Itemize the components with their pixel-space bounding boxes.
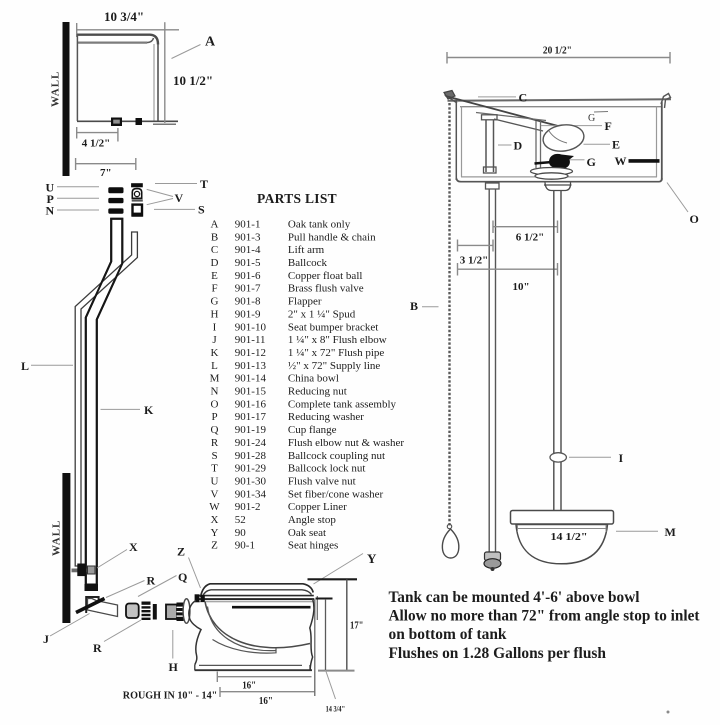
svg-text:C: C — [211, 244, 218, 256]
svg-text:A: A — [211, 219, 219, 231]
svg-text:Cup flange: Cup flange — [288, 424, 337, 436]
svg-text:L: L — [211, 360, 218, 372]
svg-text:901-15: 901-15 — [235, 386, 267, 398]
svg-text:I: I — [213, 321, 217, 333]
svg-text:H: H — [211, 308, 219, 320]
svg-text:901-19: 901-19 — [235, 424, 267, 436]
svg-text:Copper float ball: Copper float ball — [288, 270, 363, 282]
svg-text:Y: Y — [211, 527, 219, 539]
svg-text:C: C — [519, 91, 528, 105]
svg-text:D: D — [514, 139, 523, 153]
svg-text:Ballcock lock nut: Ballcock lock nut — [288, 463, 366, 475]
svg-text:J: J — [212, 334, 217, 346]
svg-text:901-1: 901-1 — [235, 219, 261, 231]
svg-text:3 1/2": 3 1/2" — [460, 255, 488, 267]
svg-text:Z: Z — [177, 545, 185, 559]
svg-text:10": 10" — [512, 281, 529, 293]
svg-text:52: 52 — [235, 514, 246, 526]
svg-text:2" x 1 ¼" Spud: 2" x 1 ¼" Spud — [288, 308, 356, 320]
svg-text:T: T — [200, 177, 208, 191]
svg-text:Ballcock coupling nut: Ballcock coupling nut — [288, 450, 385, 462]
svg-text:K: K — [144, 403, 154, 417]
svg-text:90-1: 90-1 — [235, 540, 255, 552]
svg-text:China bowl: China bowl — [288, 373, 339, 385]
svg-text:Brass flush valve: Brass flush valve — [288, 283, 364, 295]
svg-text:R: R — [147, 574, 156, 588]
svg-text:WALL: WALL — [50, 71, 62, 107]
svg-text:N: N — [46, 204, 55, 218]
svg-text:Lift arm: Lift arm — [288, 244, 325, 256]
svg-text:Q: Q — [211, 424, 219, 436]
svg-text:R: R — [211, 437, 219, 449]
svg-text:E: E — [612, 138, 620, 152]
svg-text:901-5: 901-5 — [235, 257, 261, 269]
svg-text:R: R — [93, 641, 102, 655]
svg-text:D: D — [211, 257, 219, 269]
svg-text:G: G — [211, 296, 219, 308]
svg-text:ROUGH IN 10" - 14": ROUGH IN 10" - 14" — [123, 690, 218, 702]
svg-text:Seat bumper bracket: Seat bumper bracket — [288, 321, 378, 333]
svg-text:X: X — [211, 514, 219, 526]
svg-text:901-16: 901-16 — [235, 398, 267, 410]
svg-text:I: I — [619, 451, 624, 465]
svg-text:G: G — [588, 113, 595, 124]
svg-text:Flush valve nut: Flush valve nut — [288, 476, 356, 488]
svg-text:6 1/2": 6 1/2" — [516, 232, 544, 244]
svg-text:901-7: 901-7 — [235, 283, 261, 295]
svg-text:V: V — [211, 488, 219, 500]
svg-text:Pull handle & chain: Pull handle & chain — [288, 231, 376, 243]
svg-text:Set fiber/cone washer: Set fiber/cone washer — [288, 488, 384, 500]
svg-text:10 3/4": 10 3/4" — [104, 9, 144, 24]
svg-text:X: X — [129, 540, 138, 554]
svg-text:Copper Liner: Copper Liner — [288, 501, 347, 513]
svg-text:901-24: 901-24 — [235, 437, 267, 449]
svg-text:Tank can be mounted 4'-6' abov: Tank can be mounted 4'-6' above bowl — [389, 589, 641, 606]
svg-text:901-8: 901-8 — [235, 296, 261, 308]
svg-text:F: F — [211, 283, 217, 295]
svg-text:1 ¼" x 8" Flush elbow: 1 ¼" x 8" Flush elbow — [288, 334, 387, 346]
svg-text:N: N — [211, 386, 219, 398]
svg-text:Oak seat: Oak seat — [288, 527, 326, 539]
svg-text:Complete tank assembly: Complete tank assembly — [288, 398, 397, 410]
svg-text:17": 17" — [350, 621, 364, 632]
svg-text:Z: Z — [211, 540, 218, 552]
svg-text:Y: Y — [367, 551, 377, 566]
svg-text:on bottom of tank: on bottom of tank — [389, 626, 507, 643]
svg-text:Allow no more than 72" from an: Allow no more than 72" from angle stop t… — [389, 608, 701, 625]
svg-text:901-13: 901-13 — [235, 360, 267, 372]
svg-text:WALL: WALL — [51, 520, 63, 556]
svg-text:S: S — [211, 450, 217, 462]
svg-text:Ballcock: Ballcock — [288, 257, 328, 269]
svg-text:1 ¼" x 72" Flush pipe: 1 ¼" x 72" Flush pipe — [288, 347, 384, 359]
svg-text:901-10: 901-10 — [235, 321, 267, 333]
svg-text:901-2: 901-2 — [235, 501, 261, 513]
svg-text:K: K — [211, 347, 219, 359]
svg-text:7": 7" — [100, 167, 112, 179]
svg-text:10 1/2": 10 1/2" — [173, 73, 213, 88]
svg-text:20 1/2": 20 1/2" — [543, 46, 572, 57]
svg-text:14 3/4": 14 3/4" — [326, 704, 346, 714]
svg-text:901-29: 901-29 — [235, 463, 267, 475]
svg-text:901-30: 901-30 — [235, 476, 267, 488]
svg-text:Angle stop: Angle stop — [288, 514, 336, 526]
svg-text:Seat hinges: Seat hinges — [288, 540, 338, 552]
svg-text:Reducing nut: Reducing nut — [288, 386, 347, 398]
svg-text:Reducing washer: Reducing washer — [288, 411, 364, 423]
svg-text:B: B — [211, 231, 218, 243]
svg-text:G: G — [587, 155, 596, 169]
svg-text:E: E — [211, 270, 218, 282]
svg-text:S: S — [198, 203, 205, 217]
svg-text:4 1/2": 4 1/2" — [82, 138, 110, 150]
svg-text:W: W — [615, 154, 627, 168]
svg-text:P: P — [211, 411, 217, 423]
svg-text:J: J — [43, 632, 49, 646]
svg-text:901-34: 901-34 — [235, 488, 267, 500]
svg-text:W: W — [209, 501, 220, 513]
svg-text:Flapper: Flapper — [288, 296, 322, 308]
svg-text:901-4: 901-4 — [235, 244, 261, 256]
svg-text:H: H — [169, 660, 179, 674]
svg-text:901-12: 901-12 — [235, 347, 266, 359]
svg-text:O: O — [690, 212, 699, 226]
svg-text:Oak tank only: Oak tank only — [288, 219, 351, 231]
svg-text:V: V — [175, 191, 184, 205]
svg-text:901-9: 901-9 — [235, 308, 261, 320]
svg-text:901-17: 901-17 — [235, 411, 267, 423]
svg-text:901-14: 901-14 — [235, 373, 267, 385]
svg-text:14 1/2": 14 1/2" — [551, 532, 588, 543]
svg-text:16": 16" — [242, 681, 256, 692]
svg-text:PARTS LIST: PARTS LIST — [257, 191, 337, 206]
svg-text:A: A — [205, 35, 216, 50]
svg-text:M: M — [665, 525, 676, 539]
svg-text:Q: Q — [178, 570, 187, 584]
svg-text:90: 90 — [235, 527, 247, 539]
svg-text:901-3: 901-3 — [235, 231, 261, 243]
svg-text:16": 16" — [259, 696, 273, 707]
svg-text:M: M — [210, 373, 220, 385]
svg-text:T: T — [211, 463, 218, 475]
svg-text:Flushes on 1.28 Gallons per fl: Flushes on 1.28 Gallons per flush — [389, 645, 607, 662]
svg-text:901-11: 901-11 — [235, 334, 266, 346]
svg-text:F: F — [605, 119, 612, 133]
svg-text:Flush elbow nut & washer: Flush elbow nut & washer — [288, 437, 404, 449]
svg-text:U: U — [211, 476, 219, 488]
svg-text:901-28: 901-28 — [235, 450, 267, 462]
svg-text:901-6: 901-6 — [235, 270, 261, 282]
svg-text:O: O — [211, 398, 219, 410]
svg-text:L: L — [21, 359, 29, 373]
svg-text:B: B — [410, 299, 418, 313]
svg-text:½" x 72" Supply line: ½" x 72" Supply line — [288, 360, 381, 372]
